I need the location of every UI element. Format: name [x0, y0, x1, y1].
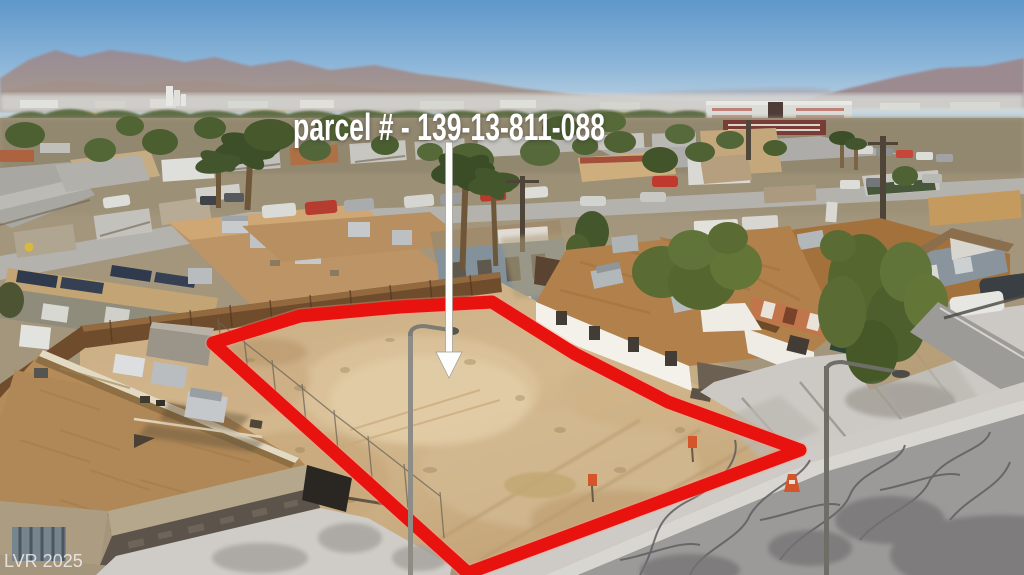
svg-text:parcel # - 139-13-811-088: parcel # - 139-13-811-088: [293, 107, 605, 149]
svg-text:LVR 2025: LVR 2025: [4, 551, 83, 571]
